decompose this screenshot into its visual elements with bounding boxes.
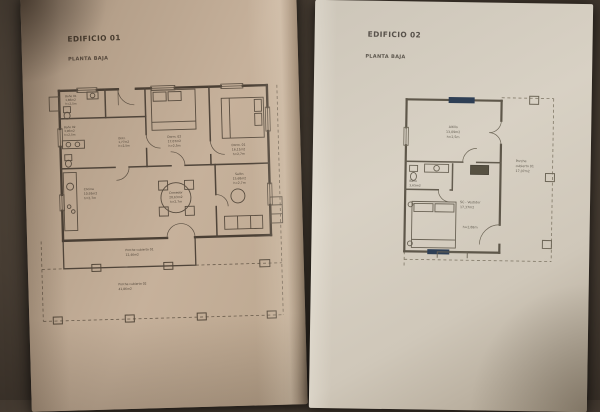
label-porche2-name: Porche cubierto 02: [118, 282, 146, 287]
label-distr-height: h=2,5m: [118, 144, 130, 148]
label-cocina-height: h=2,7m: [84, 196, 96, 200]
sheet1-subtitle: PLANTA BAJA: [68, 56, 108, 63]
label-porche02-area: 17,07m2: [516, 169, 530, 173]
dark-cabinet: [471, 165, 489, 174]
label-bano-name: Baño: [409, 179, 417, 183]
sheet-edificio-02: EDIFICIO 02 PLANTA BAJA: [309, 0, 593, 412]
label-dorm01-height: h=2,7m: [233, 152, 245, 156]
floorplan-01-drawing: EDIFICIO 01 PLANTA BAJA: [20, 0, 308, 412]
label-altillo-name: Altillo: [449, 125, 458, 129]
highlighted-window-mark-top: [449, 97, 475, 103]
label-bano01-height: h=2,5m: [65, 101, 77, 105]
label-bano02-height: h=2,5m: [64, 133, 76, 137]
label-bano-area: 3,65m2: [409, 183, 421, 187]
site-boundary-dashed-01: [37, 85, 283, 322]
label-porche1-area: 12,46m2: [125, 253, 139, 257]
sheet1-title: EDIFICIO 01: [67, 33, 121, 43]
sheet2-subtitle: PLANTA BAJA: [365, 54, 405, 61]
interior-walls-01: [59, 85, 271, 241]
furniture-02: [407, 164, 488, 259]
furniture-01: [49, 87, 283, 234]
sheet2-title: EDIFICIO 02: [368, 30, 422, 40]
label-porche2-area: 41,86m2: [118, 287, 132, 291]
site-columns-01: [52, 259, 277, 324]
windows-02: [402, 96, 475, 255]
floorplan-02-drawing: EDIFICIO 02 PLANTA BAJA: [309, 0, 593, 412]
label-altillo-height: h=2,5m: [447, 135, 460, 139]
label-principal-name: SC - Vestidor: [460, 200, 481, 204]
photo-of-floor-plans: { "colors": { "paper_left": "#c0ab95", "…: [0, 0, 600, 400]
room-labels-02: Altillo 13,09m2 h=2,5m Baño 3,65m2 SC - …: [409, 124, 535, 230]
label-porche1-name: Porche cubierto 01: [125, 247, 153, 252]
sheet-edificio-01: EDIFICIO 01 PLANTA BAJA: [20, 0, 308, 412]
label-principal-area: 17,37m2: [460, 205, 474, 209]
label-porche02-line2: cubierto 01: [516, 164, 534, 168]
label-altillo-area: 13,09m2: [446, 130, 460, 134]
door-arcs-01: [114, 86, 229, 239]
label-comedor-height: h=2,7m: [170, 199, 182, 203]
label-salon-height: h=2,7m: [233, 181, 245, 185]
exterior-walls-01: [59, 85, 271, 241]
label-principal-height: h=2,88m: [463, 225, 478, 229]
site-boundary-dashed-02: [404, 96, 554, 269]
site-columns-02: [527, 96, 555, 248]
label-porche02-line1: Porche: [516, 159, 527, 163]
label-dorm02-height: h=2,5m: [168, 144, 180, 148]
